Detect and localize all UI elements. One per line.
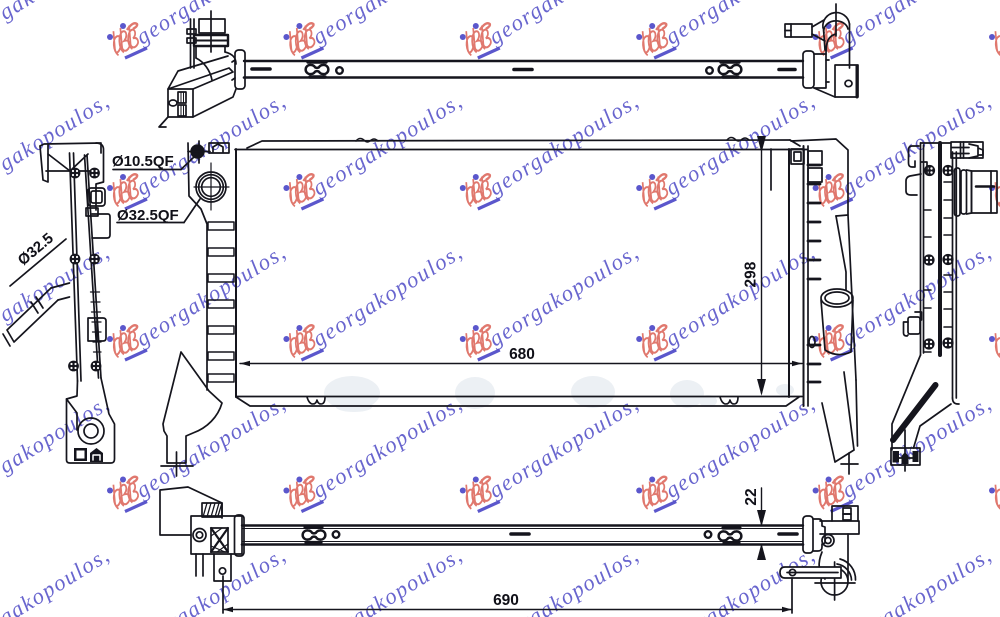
svg-text:22: 22 [743, 488, 760, 505]
svg-text:Ø10.5QF: Ø10.5QF [112, 153, 174, 170]
svg-text:680: 680 [509, 346, 535, 363]
svg-text:Ø32.5QF: Ø32.5QF [117, 207, 179, 224]
svg-text:298: 298 [743, 261, 760, 287]
svg-text:690: 690 [493, 592, 519, 609]
